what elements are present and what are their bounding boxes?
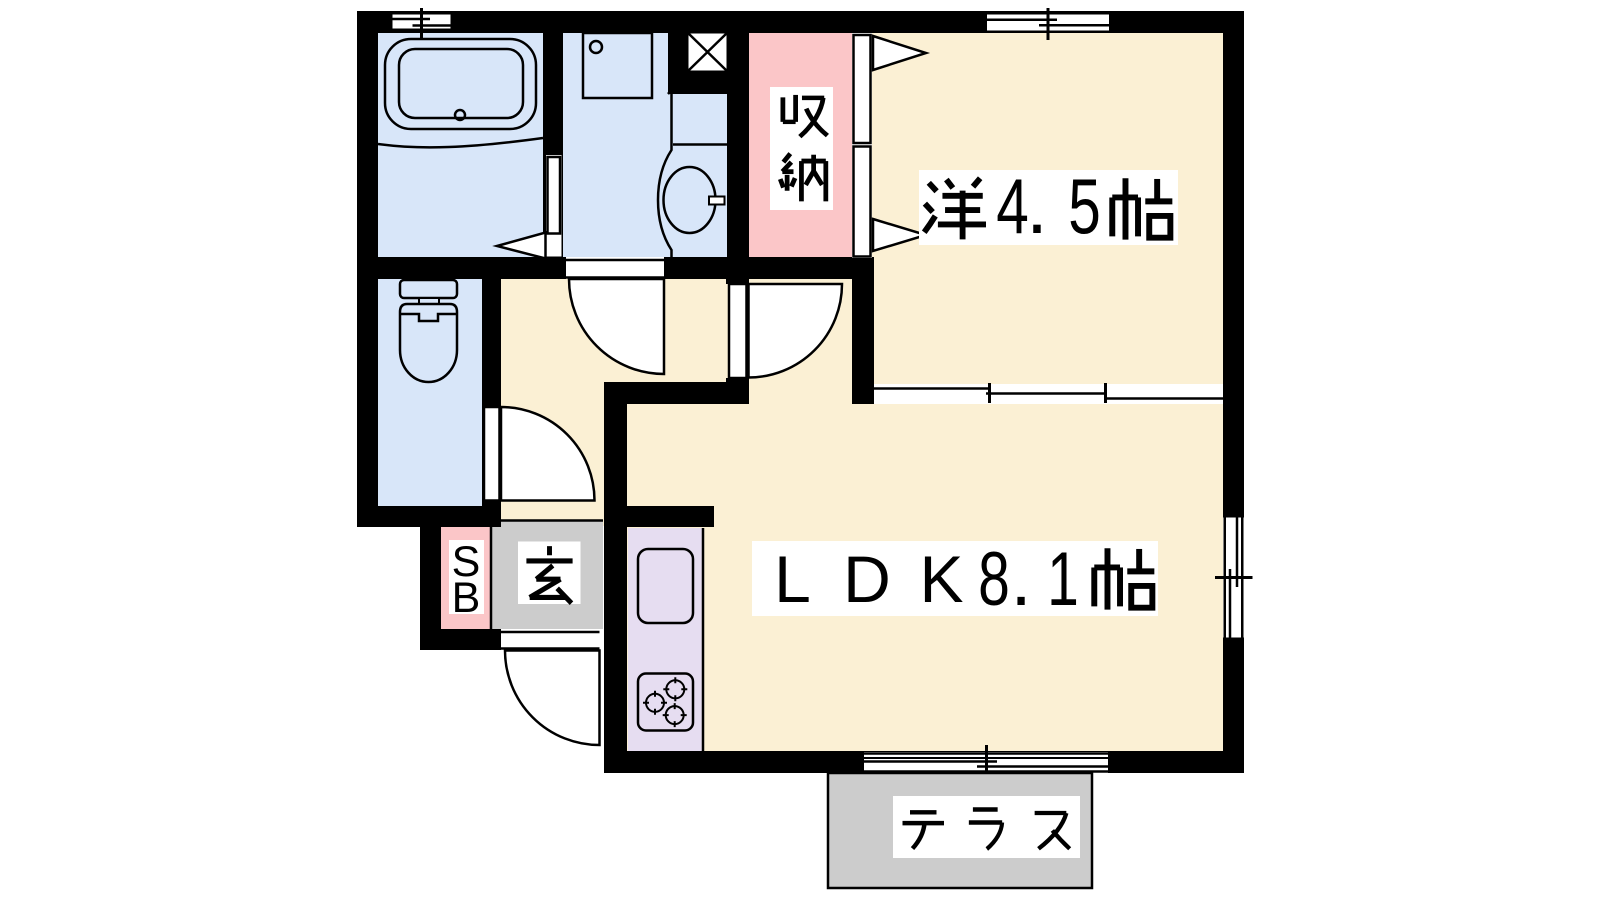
svg-text:L: L: [774, 542, 811, 616]
svg-text:1: 1: [1047, 537, 1079, 622]
svg-text:5: 5: [1068, 163, 1101, 250]
svg-text:.: .: [1010, 537, 1031, 622]
svg-text:D: D: [843, 542, 891, 616]
svg-text:.: .: [1026, 162, 1048, 250]
svg-text:4: 4: [996, 163, 1029, 250]
svg-text:8: 8: [978, 537, 1010, 622]
svg-text:K: K: [919, 542, 963, 616]
svg-text:B: B: [452, 574, 481, 622]
